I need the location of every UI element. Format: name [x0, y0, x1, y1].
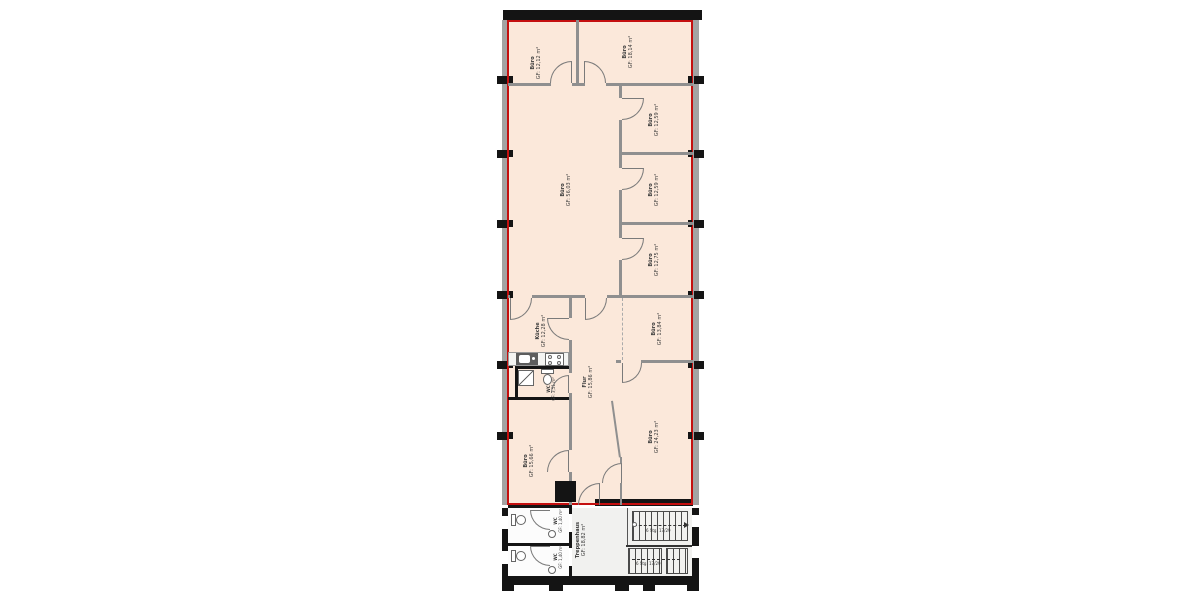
toilet-icon: [516, 515, 526, 525]
pillar-icon: [687, 585, 699, 591]
stair-up-annotation: 6 Stg. 17/29: [646, 528, 671, 533]
pillar-icon: [502, 585, 514, 591]
wall: [620, 483, 622, 505]
wall: [569, 340, 572, 373]
window-icon: [502, 551, 508, 564]
pillar-icon: [615, 585, 629, 591]
pillar-icon: [643, 585, 655, 591]
pillar-icon: [694, 150, 704, 158]
stove-icon: [545, 353, 564, 366]
wall: [616, 360, 621, 363]
pillar-icon: [509, 432, 513, 439]
wall: [569, 393, 572, 450]
pillar-icon: [694, 220, 704, 228]
wall: [607, 295, 693, 298]
pillar-icon: [497, 150, 507, 158]
floor-plan: BüroGF: 12,12 m² BüroGF: 18,14 m² BüroGF…: [0, 0, 1200, 600]
pillar-icon: [694, 76, 704, 84]
pillar-icon: [497, 432, 507, 440]
wall: [622, 152, 693, 155]
pillar-icon: [688, 432, 692, 439]
wall: [569, 298, 572, 318]
stair-walk-line-start: [632, 522, 637, 527]
window-icon: [502, 516, 508, 529]
wall: [569, 566, 572, 576]
wall: [619, 190, 622, 238]
wall: [508, 83, 551, 86]
pillar-icon: [509, 76, 513, 83]
wall: [569, 532, 572, 548]
marked-unit-floor: [508, 20, 693, 505]
pillar-icon: [694, 361, 704, 369]
pillar-icon: [497, 291, 507, 299]
stair-flight-down: [666, 548, 688, 574]
dashed-opening-line: [622, 298, 623, 360]
pillar-icon: [694, 432, 704, 440]
wall: [622, 222, 693, 225]
marked-outline-top: [507, 20, 693, 22]
pillar-icon: [497, 361, 507, 369]
window-icon: [692, 546, 699, 558]
wall: [619, 120, 622, 168]
shaft: [555, 481, 576, 502]
kitchen-sink-icon: [516, 353, 538, 365]
pillar-icon: [509, 220, 513, 227]
wall: [641, 360, 693, 363]
exterior-wall-top: [503, 10, 702, 20]
toilet-icon: [516, 551, 526, 561]
wall: [619, 260, 622, 295]
stair-walk-line: [634, 525, 686, 526]
shower-icon: [518, 370, 534, 386]
stair-arrow-icon: [684, 522, 689, 528]
stair-wall: [627, 508, 628, 545]
wall: [576, 20, 579, 83]
annex-wall-bottom: [502, 576, 699, 585]
pillar-icon: [549, 585, 563, 591]
wall: [508, 397, 569, 400]
stair-landing-edge: [626, 545, 692, 547]
wall: [572, 83, 585, 86]
pillar-icon: [509, 150, 513, 157]
pillar-icon: [694, 291, 704, 299]
wall: [532, 295, 585, 298]
stair-flight-up: [632, 511, 688, 541]
stair-walk-line: [632, 559, 680, 560]
window-icon: [692, 515, 699, 527]
wall: [619, 86, 622, 98]
pillar-icon: [497, 76, 507, 84]
wall: [569, 508, 572, 514]
pillar-icon: [497, 220, 507, 228]
wall: [508, 505, 572, 508]
stair-down-annotation: 6 Stg. 17/29: [636, 561, 661, 566]
pillar-icon: [688, 76, 692, 83]
